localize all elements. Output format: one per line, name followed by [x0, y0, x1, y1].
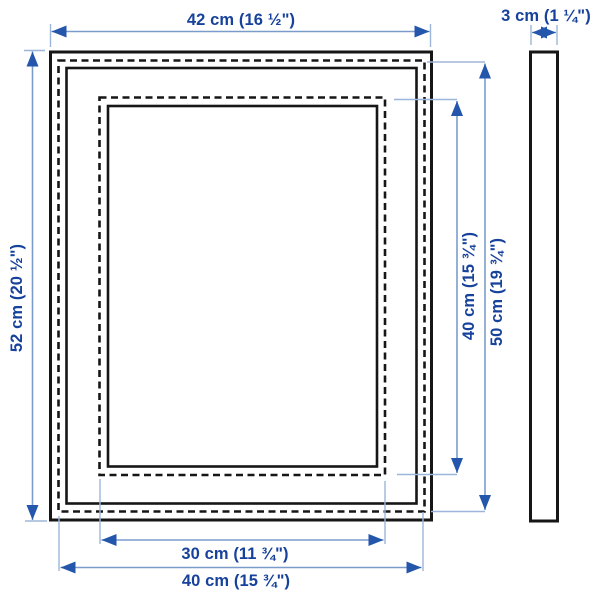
mat-opening-edge — [108, 106, 377, 467]
front-width-label: 42 cm (16 ½") — [187, 11, 295, 29]
diagram-svg: 42 cm (16 ½") 52 cm (20 ½") 3 cm (1 ¼") … — [0, 0, 600, 600]
dim-front-height: 52 cm (20 ½") — [8, 51, 47, 522]
dim-depth: 3 cm (1 ¼") — [501, 7, 591, 45]
dim-front-width: 42 cm (16 ½") — [51, 11, 431, 47]
back-height-label: 50 cm (19 ¾") — [488, 238, 506, 346]
depth-label: 3 cm (1 ¼") — [501, 7, 591, 25]
front-height-label: 52 cm (20 ½") — [8, 244, 26, 352]
picture-height-label: 40 cm (15 ¾") — [460, 232, 478, 340]
front-view — [51, 52, 432, 520]
picture-width-label: 30 cm (11 ¾") — [181, 545, 288, 563]
side-view — [531, 52, 558, 521]
back-width-label: 40 cm (15 ¾") — [182, 572, 290, 590]
frame-side-profile — [531, 52, 558, 521]
frame-dimension-diagram: 42 cm (16 ½") 52 cm (20 ½") 3 cm (1 ¼") … — [0, 0, 600, 600]
